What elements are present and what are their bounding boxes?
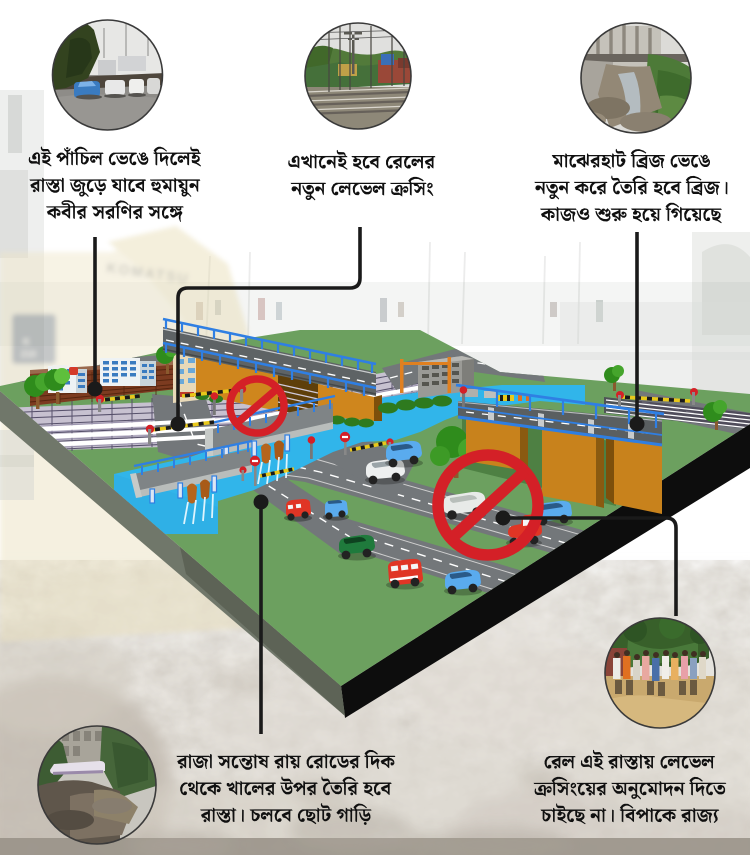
svg-text:210: 210 bbox=[21, 349, 36, 359]
svg-text:K: K bbox=[23, 337, 31, 348]
